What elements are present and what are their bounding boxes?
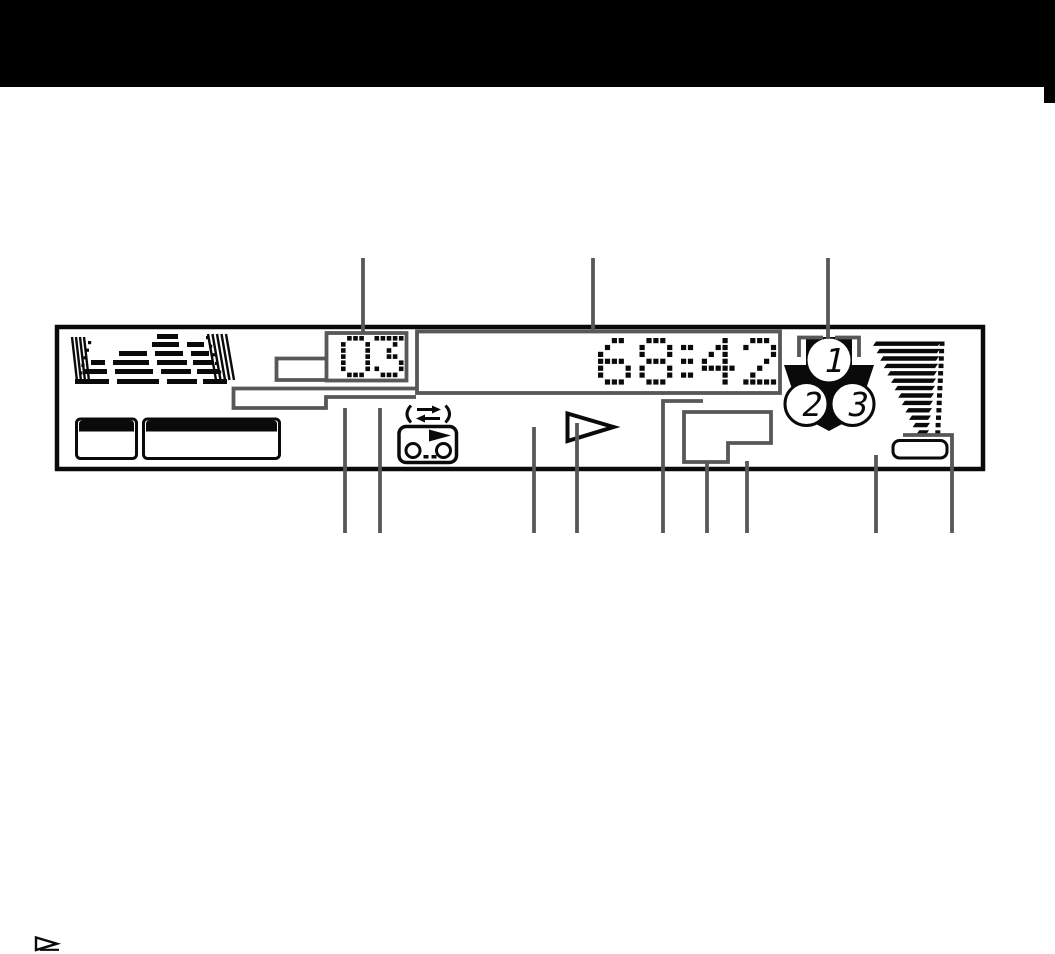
battery-pill-outline bbox=[893, 441, 947, 459]
program-box-small bbox=[77, 419, 137, 459]
cassette-icon bbox=[399, 427, 457, 463]
program-box-large bbox=[144, 419, 280, 459]
play-triangle-marker bbox=[36, 938, 59, 951]
manual-page: 1 2 3 bbox=[0, 0, 1055, 954]
display-diagram: 1 2 3 bbox=[0, 0, 1055, 954]
